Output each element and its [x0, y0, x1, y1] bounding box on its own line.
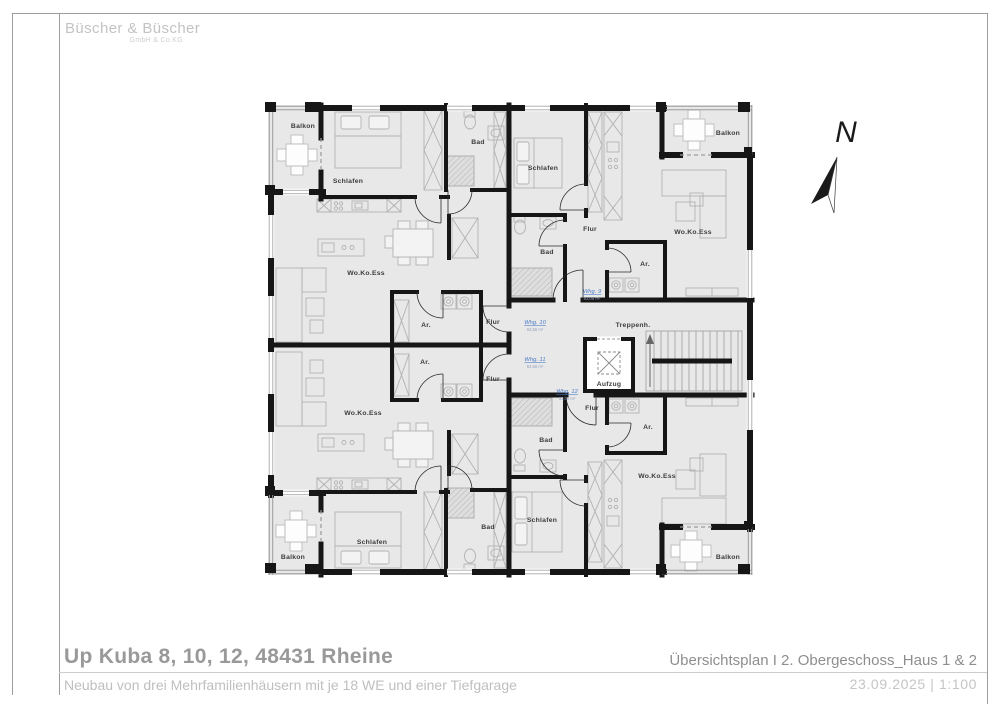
room-label: Balkon [291, 123, 315, 130]
room-label: Bad [471, 139, 485, 146]
room-label: Wo.Ko.Ess [638, 473, 676, 480]
north-letter: N [835, 116, 857, 149]
apartment-label: Whg. 9 [583, 289, 602, 295]
apartment-label: Whg. 12 [556, 389, 578, 395]
apartment-area: 93,08 m² [584, 296, 601, 301]
apartment-label: Whg. 10 [524, 320, 546, 326]
room-label: Ar. [421, 322, 431, 329]
room-label: Balkon [281, 554, 305, 561]
room-label: Bad [540, 249, 554, 256]
stair-railing [652, 359, 732, 364]
apartment-area: 93,08 m² [559, 396, 576, 401]
room-label: Bad [539, 437, 553, 444]
room-label: Ar. [640, 261, 650, 268]
floor-plan-canvas: BalkonSchlafenBadWo.Ko.EssAr.FlurSchlafe… [0, 0, 1000, 707]
room-label: Treppenh. [616, 322, 651, 329]
room-label: Wo.Ko.Ess [674, 229, 712, 236]
room-label: Schlafen [333, 178, 363, 185]
room-label: Balkon [716, 130, 740, 137]
room-label: Schlafen [528, 165, 558, 172]
room-label: Ar. [643, 424, 653, 431]
room-label: Wo.Ko.Ess [347, 270, 385, 277]
room-label: Ar. [420, 359, 430, 366]
room-label: Flur [585, 405, 599, 412]
room-label: Wo.Ko.Ess [344, 410, 382, 417]
room-label: Schlafen [357, 539, 387, 546]
room-label: Flur [486, 319, 500, 326]
apartment-area: 84,56 m² [527, 364, 544, 369]
room-label: Balkon [716, 554, 740, 561]
room-label: Schlafen [527, 517, 557, 524]
room-label: Flur [583, 226, 597, 233]
apartment-area: 84,56 m² [527, 327, 544, 332]
apartment-label: Whg. 11 [524, 357, 545, 363]
room-label: Flur [486, 376, 500, 383]
plan-sheet: Büscher & Büscher GmbH & Co.KG Up Kuba 8… [0, 0, 1000, 707]
room-label: Bad [481, 524, 495, 531]
north-arrow: N [811, 116, 857, 213]
room-label: Aufzug [597, 381, 622, 388]
